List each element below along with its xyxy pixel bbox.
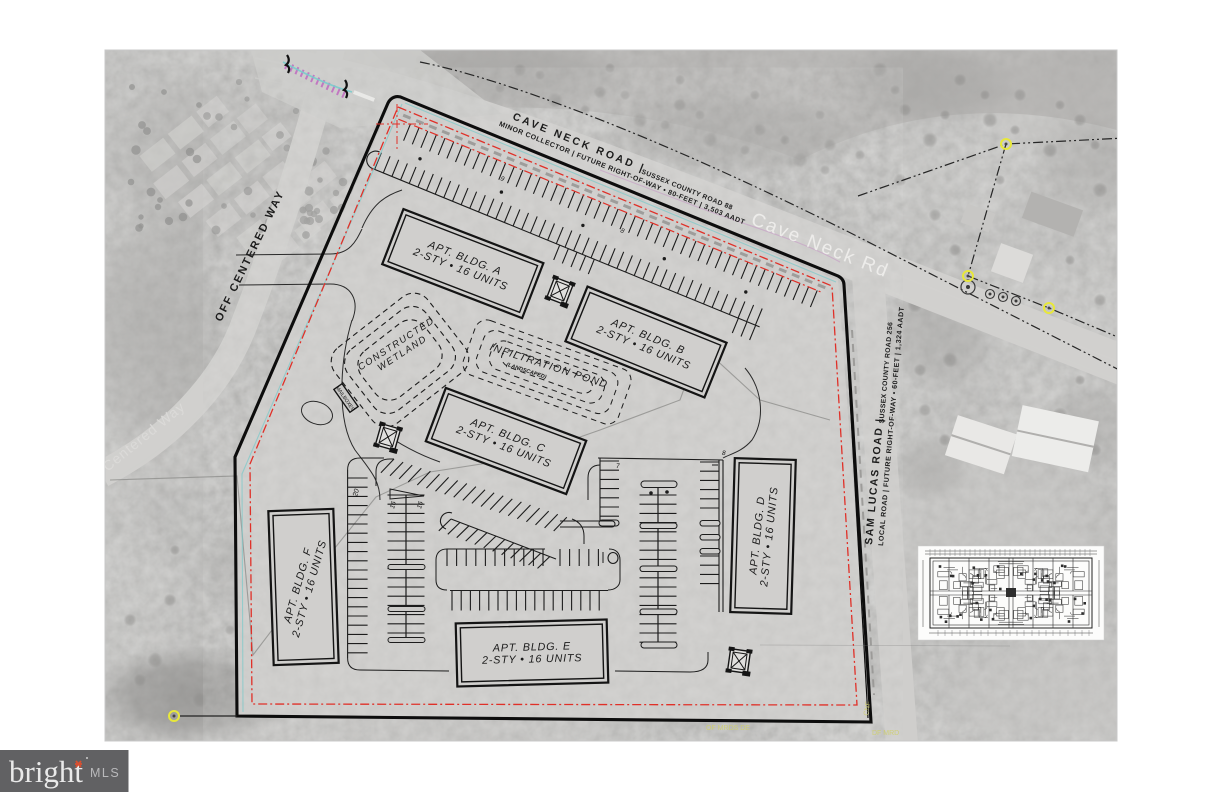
svg-text:bright: bright — [9, 754, 83, 789]
svg-text:MLS: MLS — [90, 766, 120, 780]
svg-text:7: 7 — [616, 463, 620, 470]
svg-text:DF MRD: DF MRD — [872, 730, 899, 737]
svg-text:8: 8 — [722, 450, 726, 457]
svg-text:OF MRDS DE: OF MRDS DE — [706, 725, 750, 732]
